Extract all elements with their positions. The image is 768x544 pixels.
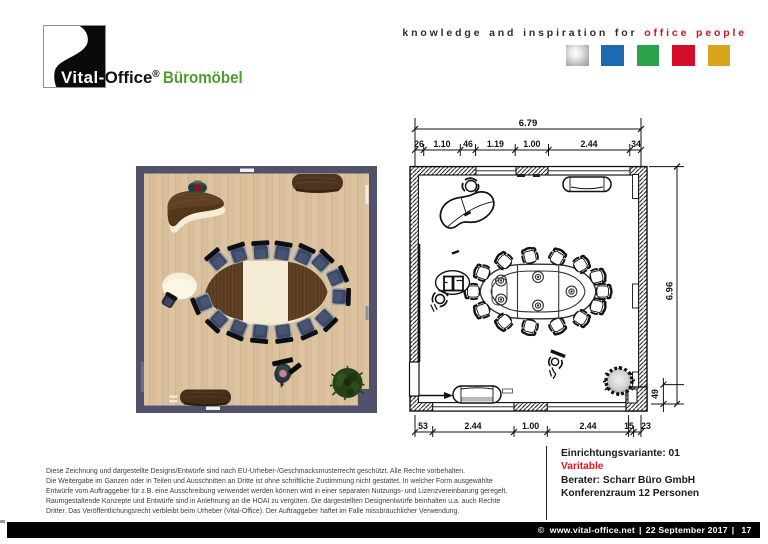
- svg-text:2.44: 2.44: [580, 139, 597, 149]
- svg-text:46: 46: [463, 139, 473, 149]
- svg-text:2.44: 2.44: [464, 421, 481, 431]
- svg-text:6.96: 6.96: [665, 282, 676, 301]
- svg-text:15: 15: [624, 421, 634, 431]
- svg-text:1.00: 1.00: [523, 139, 540, 149]
- svg-text:34: 34: [631, 139, 641, 149]
- svg-text:23: 23: [641, 421, 651, 431]
- svg-text:1.19: 1.19: [487, 139, 504, 149]
- svg-text:1.00: 1.00: [522, 421, 539, 431]
- svg-text:53: 53: [418, 421, 428, 431]
- svg-text:6.79: 6.79: [519, 118, 538, 129]
- svg-text:49: 49: [650, 389, 660, 399]
- svg-text:1.10: 1.10: [433, 139, 450, 149]
- svg-text:2.44: 2.44: [579, 421, 596, 431]
- svg-text:26: 26: [414, 139, 424, 149]
